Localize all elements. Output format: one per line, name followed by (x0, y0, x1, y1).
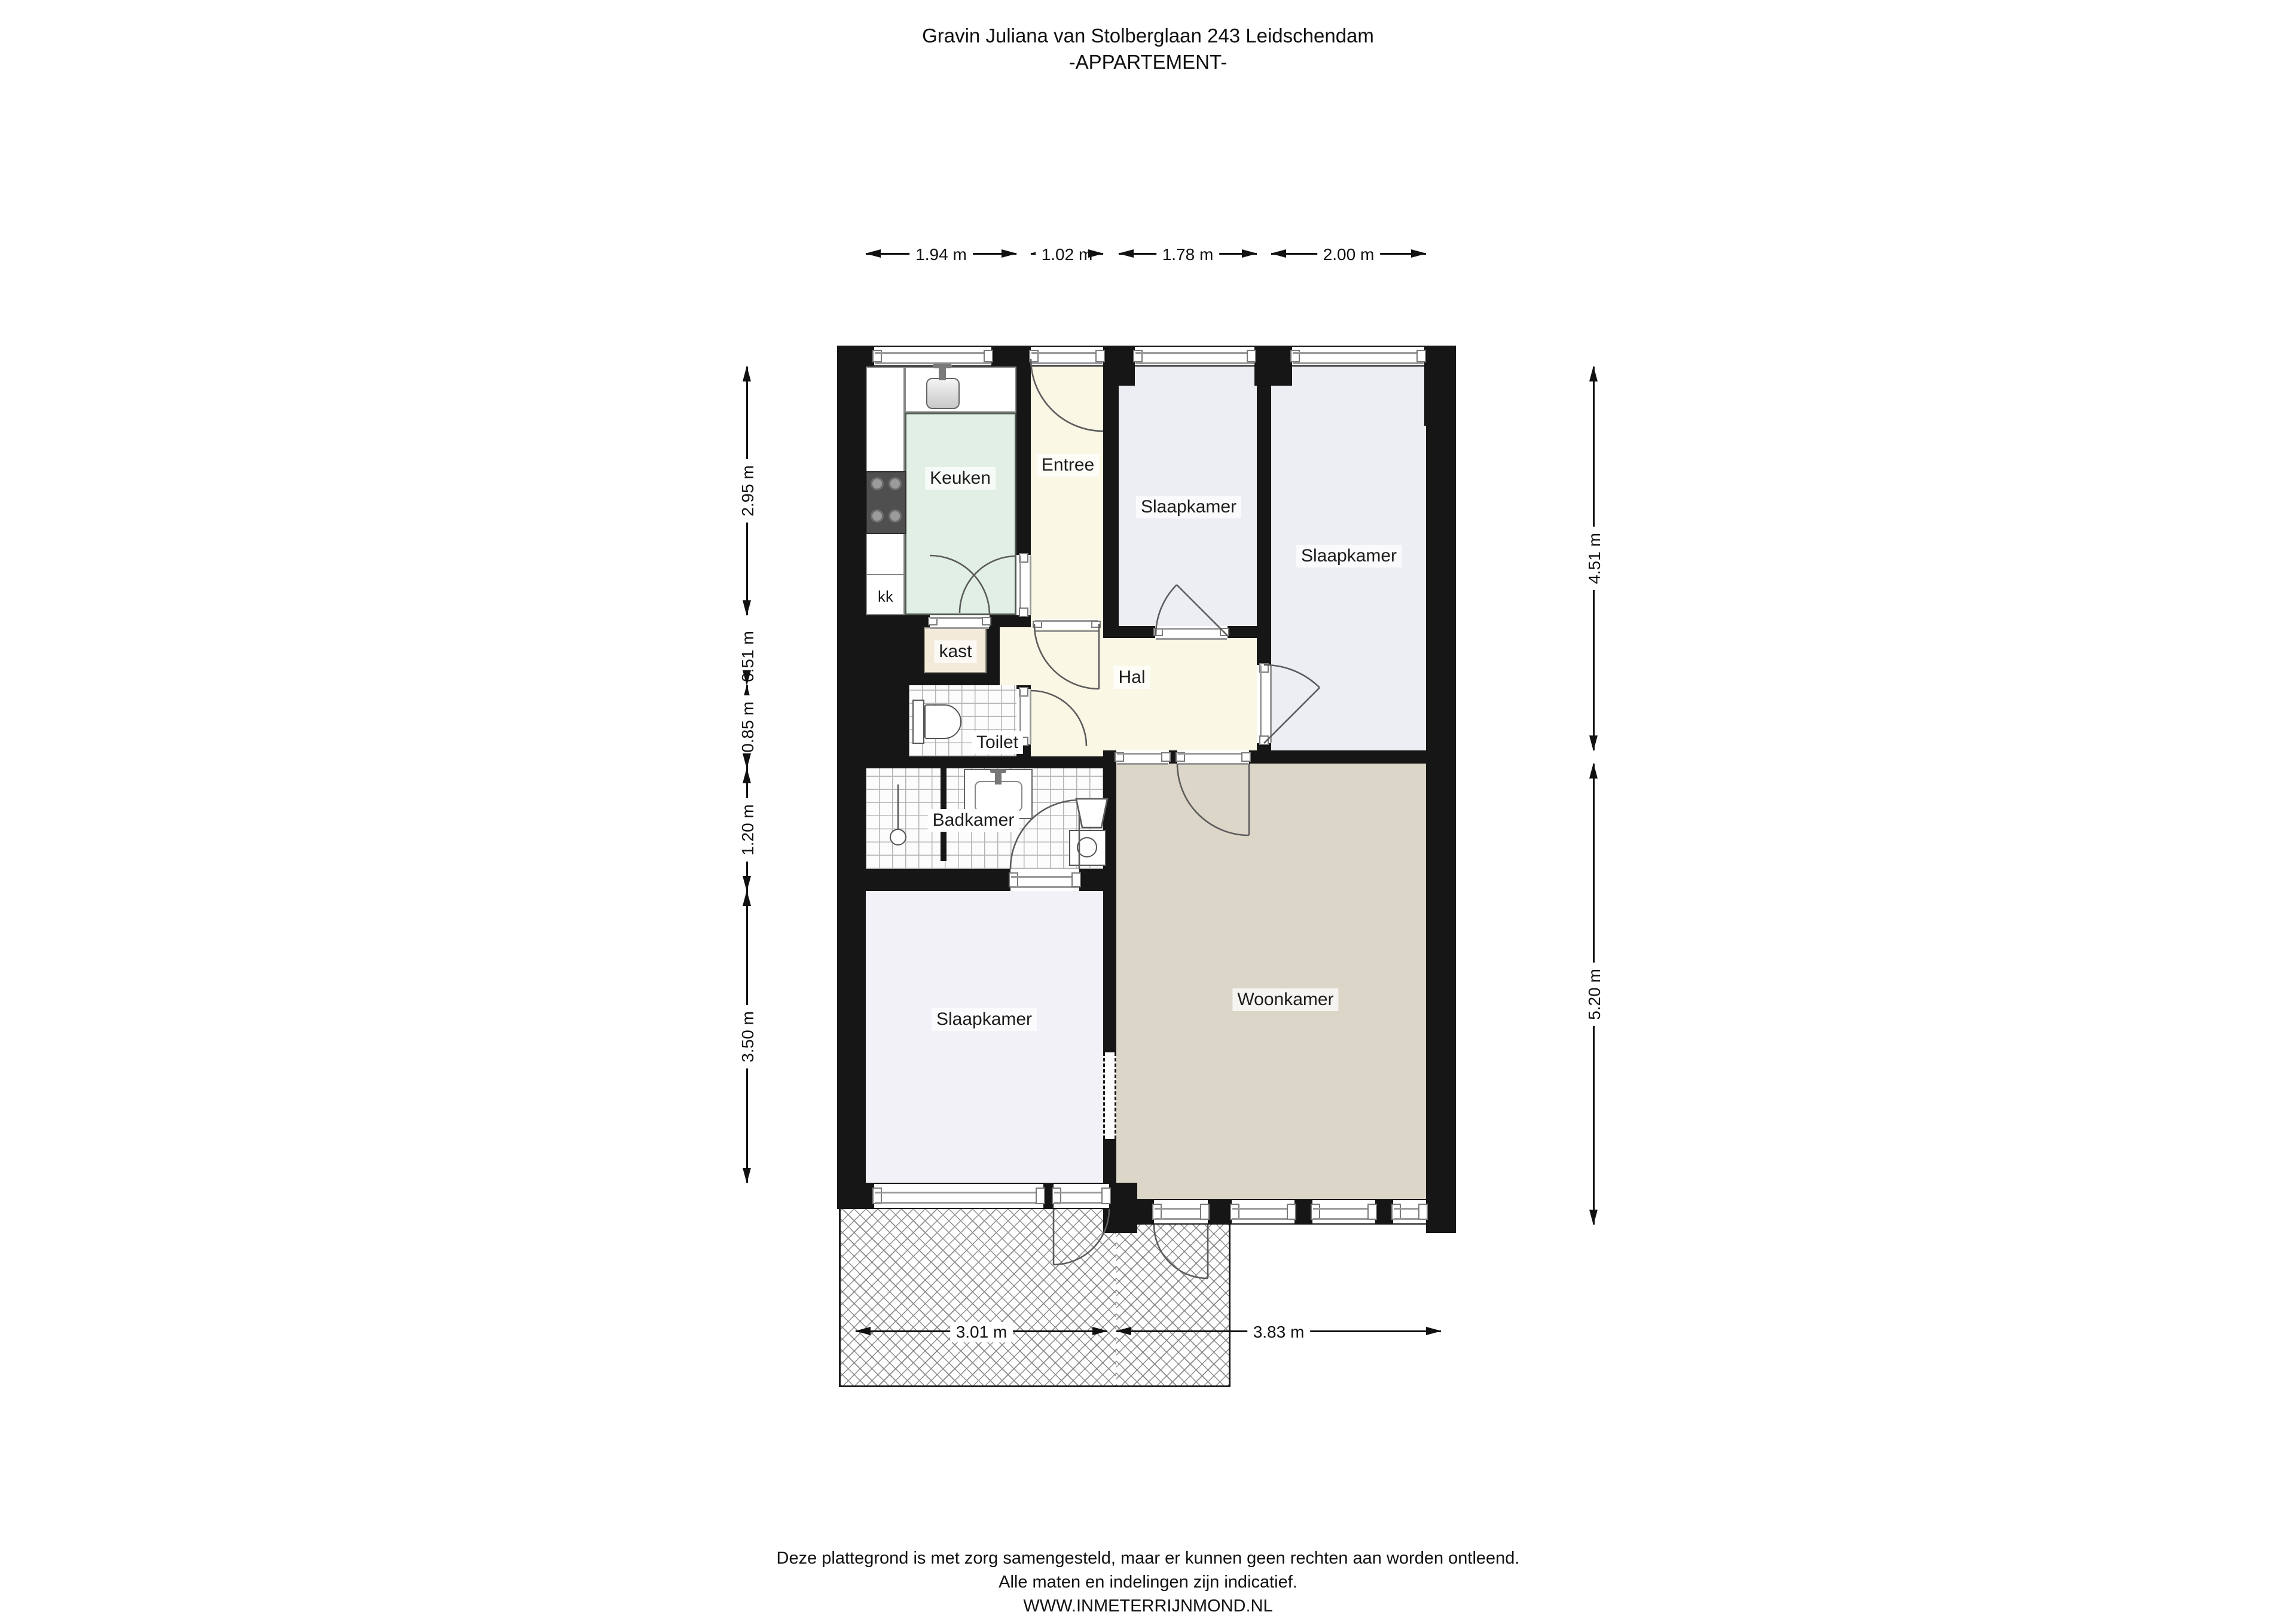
label-keuken: Keuken (925, 467, 996, 490)
disclaimer-url: WWW.INMETERRIJNMOND.NL (0, 1594, 2296, 1618)
dim-bottom-2: 3.83 m (1116, 1330, 1441, 1332)
label-badkamer: Badkamer (928, 809, 1019, 832)
dim-label: 0.51 m (738, 625, 758, 688)
wall-left-outer (837, 346, 866, 1209)
boiler-icon (926, 378, 960, 409)
dim-left-3: 0.85 m (746, 685, 748, 768)
shower-drain-icon (890, 829, 906, 845)
dim-top-2: 1.02 m (1031, 253, 1103, 255)
disclaimer-line2: Alle maten en indelingen zijn indicatief… (0, 1570, 2296, 1594)
dim-label: 3.83 m (1247, 1322, 1311, 1342)
wall-pier-top-right-corner (1424, 346, 1456, 426)
wall-right-outer (1426, 346, 1456, 1225)
door-opening-slaapkamer1 (1155, 626, 1228, 638)
room-entree-floor (1031, 367, 1103, 627)
wall-pier-bottom-right-corner (1426, 1199, 1456, 1233)
label-woonkamer: Woonkamer (1232, 988, 1338, 1011)
room-keuken-floor (905, 413, 1016, 615)
dim-left-1: 2.95 m (746, 367, 748, 615)
door-opening-badkamer (1010, 869, 1079, 891)
dim-bottom-1: 3.01 m (856, 1330, 1107, 1332)
door-opening-woonkamer (1177, 750, 1249, 764)
open-passage-dashed (1103, 1052, 1116, 1139)
dim-right-2: 5.20 m (1593, 764, 1595, 1225)
boiler-tap-bar-icon (933, 364, 952, 368)
label-slaapkamer2: Slaapkamer (1296, 545, 1402, 567)
sink-tap-bar-icon (990, 769, 1006, 773)
window-slaapkamer1 (1135, 347, 1254, 365)
dim-top-1: 1.94 m (866, 253, 1016, 255)
balcony-left (839, 1209, 1116, 1387)
burner-icon (871, 509, 884, 523)
dim-top-3: 1.78 m (1119, 253, 1257, 255)
room-woonkamer-floor (1116, 764, 1426, 1199)
front-door-opening (1031, 347, 1103, 365)
wall-toilet-badkamer (866, 756, 1103, 768)
burner-icon (871, 477, 884, 490)
dim-left-4: 1.20 m (746, 768, 748, 891)
burner-icon (889, 509, 902, 523)
label-slaapkamer3: Slaapkamer (932, 1008, 1037, 1031)
kitchen-counter-top (905, 367, 1016, 413)
sink-tap-icon (995, 771, 1002, 784)
label-kk: kk (873, 587, 898, 608)
room-slaapkamer3-floor (866, 891, 1103, 1183)
glass-panel-hal-woonkamer (1116, 750, 1169, 764)
window-slaapkamer2 (1292, 347, 1424, 365)
dim-label: 5.20 m (1584, 963, 1605, 1026)
washing-machine-icon (1069, 830, 1106, 866)
door-opening-slaapkamer2 (1257, 665, 1271, 743)
room-hal-floor-mid (1031, 685, 1103, 756)
dim-label: 1.02 m (1036, 245, 1099, 265)
wall-toilet-left-block (837, 673, 909, 768)
dim-label: 3.01 m (950, 1322, 1013, 1342)
burner-icon (889, 477, 902, 490)
dim-left-5: 3.50 m (746, 891, 748, 1183)
disclaimer-line1: Deze plattegrond is met zorg samengestel… (0, 1546, 2296, 1570)
dim-left-2: 0.51 m (746, 627, 748, 685)
window-woonkamer-1 (1232, 1200, 1294, 1223)
counter-divider (866, 574, 905, 575)
dim-label: 1.94 m (909, 245, 973, 265)
window-woonkamer-2 (1312, 1200, 1375, 1223)
toilet-bowl-icon (924, 704, 961, 739)
dim-top-4: 2.00 m (1271, 253, 1426, 255)
stove (866, 471, 906, 534)
room-hal-floor-west (1000, 627, 1103, 685)
door-opening-kast (930, 615, 990, 627)
dim-label: 1.20 m (738, 798, 758, 862)
balcony-door-slaapkamer3 (1054, 1184, 1109, 1208)
door-opening-keuken (1016, 555, 1031, 615)
label-kast: kast (934, 640, 976, 663)
label-entree: Entree (1037, 454, 1099, 477)
wall-kast-bottom (909, 673, 1000, 685)
door-opening-entree-hal (1034, 619, 1099, 629)
dim-label: 4.51 m (1584, 527, 1605, 590)
balcony-right (1116, 1225, 1231, 1387)
balcony-door-woonkamer (1154, 1200, 1208, 1223)
window-keuken (874, 347, 991, 365)
wall-entree-slaapkamer1 (1103, 367, 1119, 638)
window-slaapkamer3 (874, 1184, 1043, 1208)
washer-drum-icon (1077, 837, 1097, 857)
label-toilet: Toilet (972, 731, 1023, 754)
disclaimer: Deze plattegrond is met zorg samengestel… (0, 1546, 2296, 1618)
dim-label: 0.85 m (738, 695, 758, 759)
dim-label: 1.78 m (1156, 245, 1220, 265)
label-hal: Hal (1113, 666, 1150, 689)
dim-label: 3.50 m (738, 1005, 758, 1069)
toilet-tank-icon (912, 700, 924, 744)
dim-label: 2.95 m (738, 459, 758, 523)
dim-label: 2.00 m (1317, 245, 1381, 265)
window-woonkamer-3 (1393, 1200, 1426, 1223)
label-slaapkamer1: Slaapkamer (1136, 496, 1241, 518)
dim-right-1: 4.51 m (1593, 367, 1595, 750)
room-hal-floor-east (1103, 638, 1257, 750)
sink-basin-icon (975, 781, 1022, 812)
floor-plan: Keuken Entree Slaapkamer Slaapkamer Hal … (0, 0, 2296, 1624)
